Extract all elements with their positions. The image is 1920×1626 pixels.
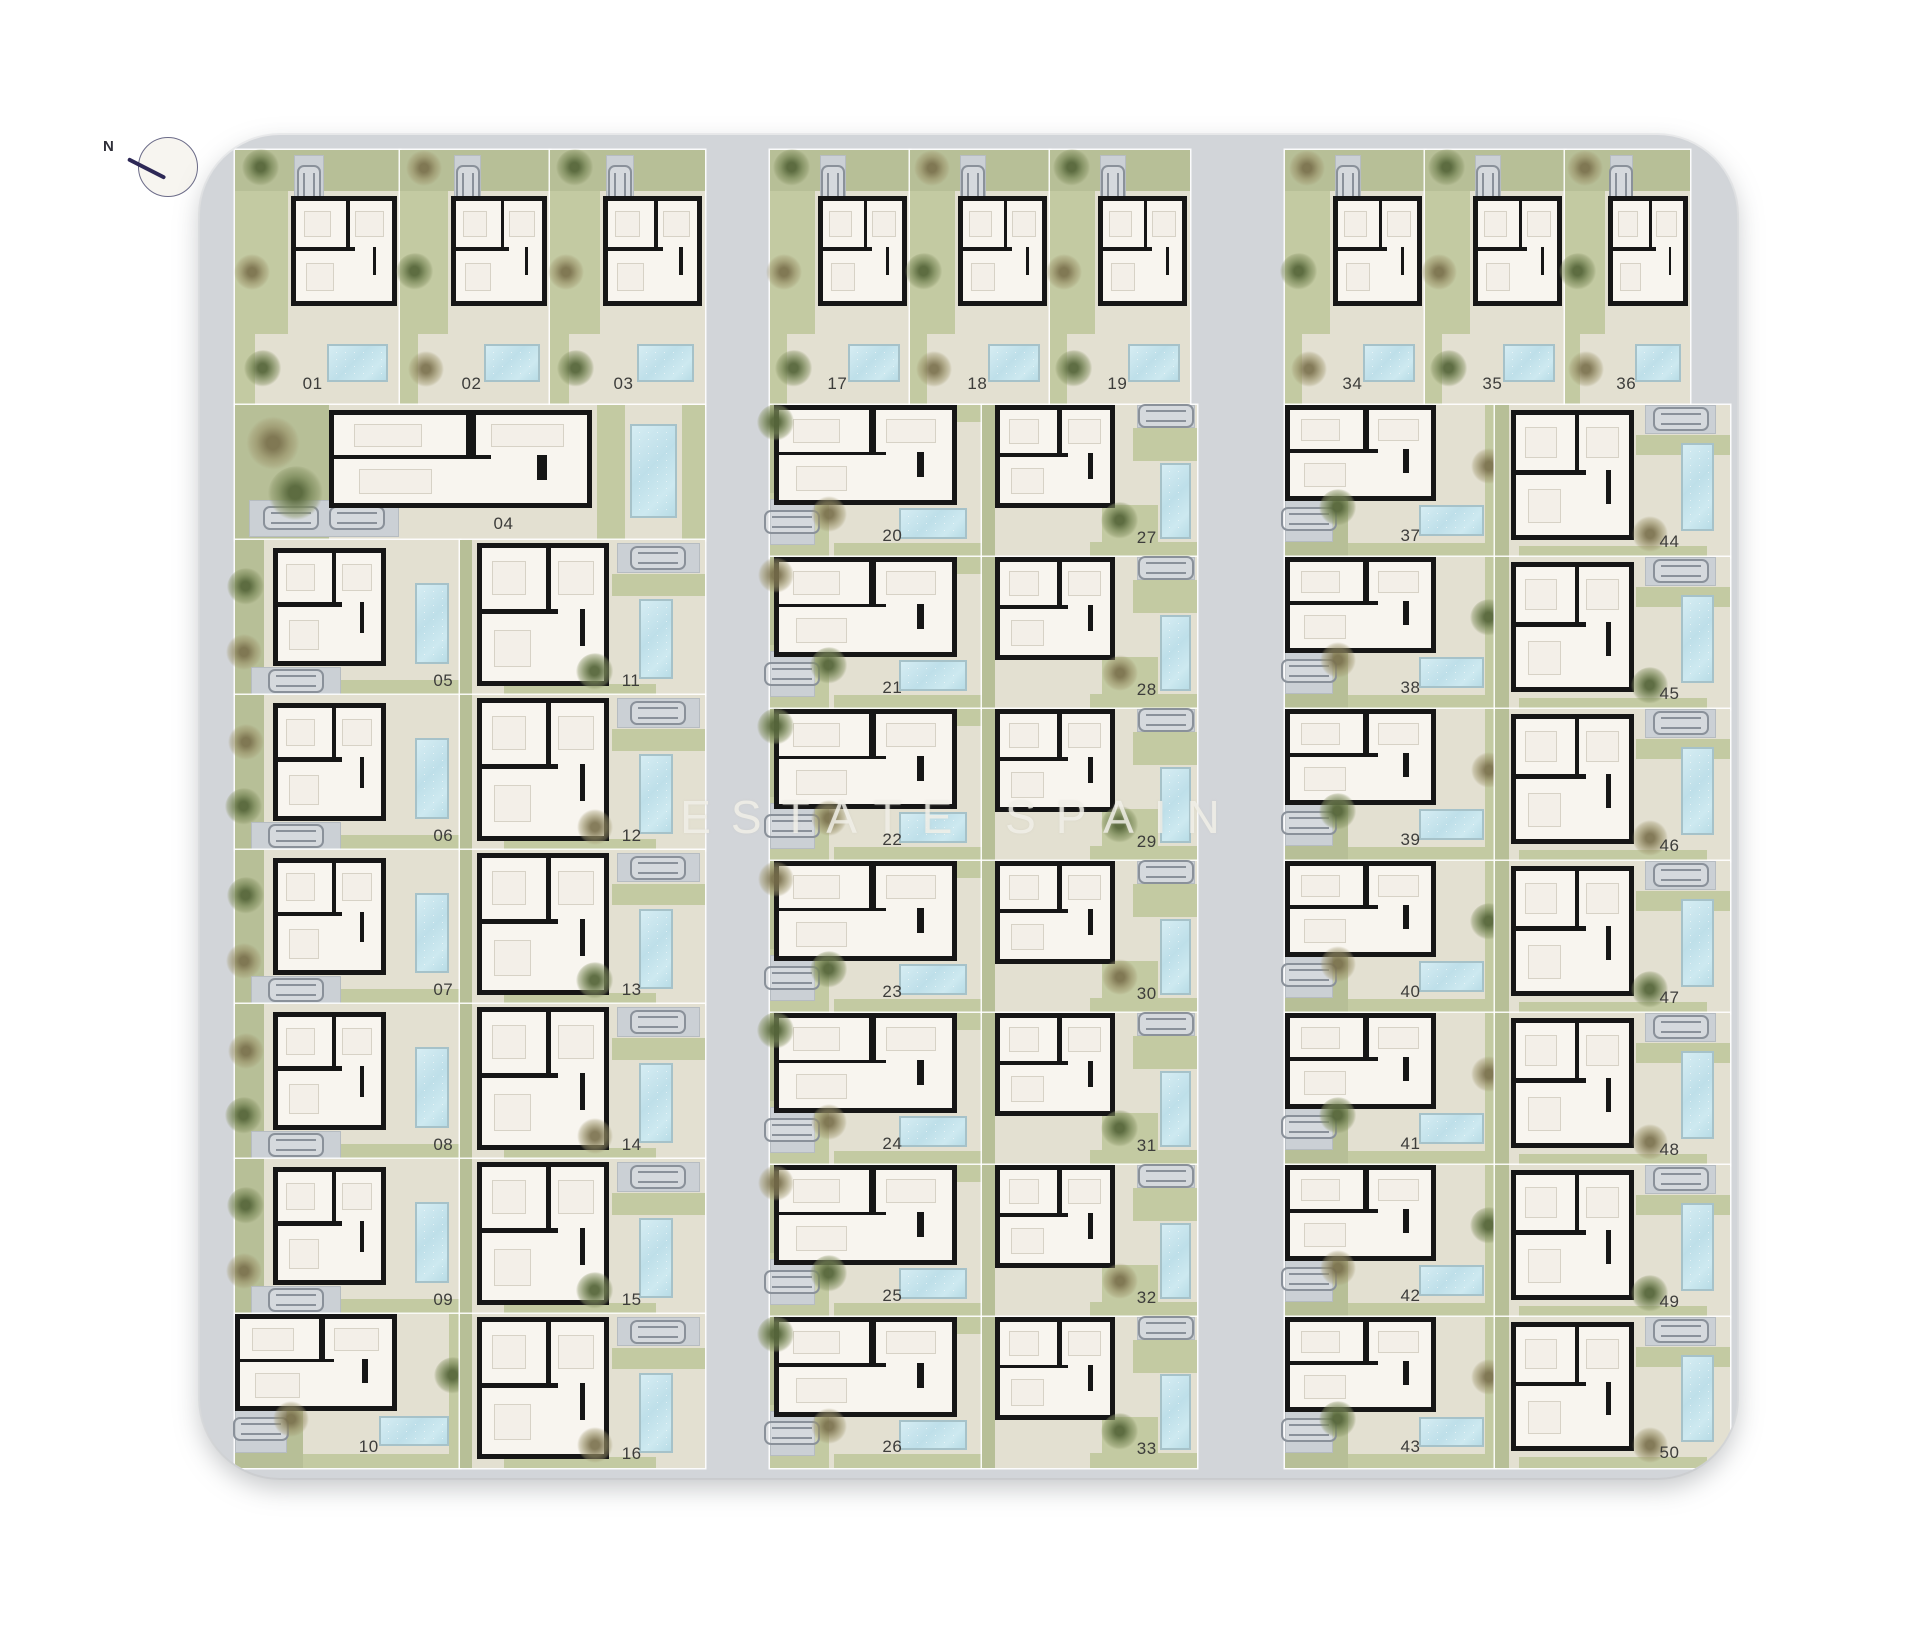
interior-wall: [278, 1221, 342, 1225]
garden-patch: [1133, 428, 1198, 461]
interior-wall: [917, 908, 924, 933]
swimming-pool: [1160, 1071, 1190, 1147]
interior-wall: [1088, 757, 1092, 783]
furniture-outline: [1011, 468, 1044, 494]
parking-pad: [617, 853, 700, 882]
furniture-outline: [1068, 419, 1101, 443]
interior-wall: [1363, 866, 1369, 905]
swimming-pool: [630, 424, 677, 519]
swimming-pool: [415, 1047, 449, 1128]
interior-wall: [1649, 201, 1652, 247]
furniture-outline: [796, 1074, 846, 1099]
plot-44: 44: [1495, 405, 1730, 557]
furniture-outline: [558, 1025, 594, 1059]
furniture-outline: [1012, 211, 1036, 237]
plot-number: 27: [1137, 529, 1157, 546]
house-footprint: [774, 861, 956, 961]
furniture-outline: [1525, 1035, 1556, 1066]
plot-08: 08: [235, 1004, 460, 1159]
interior-wall: [869, 1018, 876, 1060]
house-footprint: [774, 1165, 956, 1265]
furniture-outline: [1484, 211, 1507, 237]
plot-04: 04: [235, 405, 705, 540]
car-icon: [1653, 559, 1709, 583]
interior-wall: [1057, 562, 1061, 605]
furniture-outline: [1528, 489, 1561, 522]
furniture-outline: [1009, 1331, 1040, 1355]
parking-pad: [770, 1411, 815, 1456]
plot-number: 20: [882, 527, 902, 544]
furniture-outline: [793, 571, 840, 595]
plot-number: 44: [1660, 533, 1680, 550]
interior-wall: [360, 1221, 364, 1251]
interior-wall: [1290, 449, 1378, 452]
interior-wall: [779, 908, 886, 912]
interior-wall: [1606, 470, 1610, 504]
furniture-outline: [1068, 723, 1101, 747]
parking-pad: [617, 1317, 700, 1346]
furniture-outline: [1378, 571, 1420, 594]
parking-pad: [617, 543, 700, 572]
car-icon: [1138, 1164, 1194, 1188]
north-compass: N: [95, 130, 205, 220]
plot-number: 07: [433, 981, 453, 998]
plot-number: 04: [494, 515, 514, 532]
furniture-outline: [1586, 1339, 1619, 1370]
furniture-outline: [359, 469, 432, 494]
swimming-pool: [1419, 1265, 1484, 1295]
interior-wall: [864, 201, 867, 247]
car-icon: [630, 701, 686, 725]
garden-patch: [834, 1151, 982, 1165]
interior-wall: [278, 912, 342, 916]
plot-number: 30: [1137, 985, 1157, 1002]
plot-50: 50: [1495, 1317, 1730, 1468]
interior-wall: [580, 764, 585, 801]
interior-wall: [679, 247, 683, 275]
garden-patch: [982, 1165, 995, 1317]
plot-38: 38: [1285, 557, 1495, 709]
interior-wall: [482, 764, 558, 769]
furniture-outline: [1011, 1379, 1044, 1405]
furniture-outline: [1378, 1331, 1420, 1353]
plot-number: 42: [1401, 1287, 1421, 1304]
furniture-outline: [793, 723, 840, 747]
furniture-outline: [1304, 767, 1346, 791]
plot-number: 36: [1616, 375, 1636, 392]
plot-39: 39: [1285, 709, 1495, 861]
plot-number: 08: [433, 1136, 453, 1153]
furniture-outline: [1378, 723, 1420, 746]
furniture-outline: [492, 561, 526, 595]
plot-34: 34: [1285, 150, 1425, 405]
garden-patch: [1133, 732, 1198, 765]
furniture-outline: [1586, 579, 1619, 610]
garden-patch: [303, 1454, 449, 1468]
furniture-outline: [1378, 1027, 1420, 1050]
interior-wall: [1379, 201, 1382, 247]
parking-pad: [1645, 709, 1716, 738]
compass-north-label: N: [103, 138, 114, 155]
house-footprint: [1511, 410, 1633, 541]
plot-number: 21: [882, 679, 902, 696]
parking-pad: [251, 1286, 341, 1314]
car-icon: [329, 506, 385, 530]
parking-pad: [1137, 557, 1195, 580]
plot-26: 26: [770, 1317, 982, 1468]
interior-wall: [1575, 415, 1579, 471]
house-footprint: [995, 861, 1115, 964]
swimming-pool: [1681, 1051, 1714, 1139]
house-footprint: [774, 405, 956, 505]
plot-number: 17: [827, 375, 847, 392]
car-icon: [630, 1010, 686, 1034]
plot-number: 18: [967, 375, 987, 392]
furniture-outline: [494, 785, 530, 821]
plot-number: 15: [622, 1291, 642, 1308]
car-icon: [1138, 404, 1194, 428]
house-footprint: [235, 1314, 397, 1411]
garden-patch: [834, 695, 982, 709]
furniture-outline: [831, 263, 855, 291]
car-icon: [268, 1288, 324, 1312]
garden-patch: [612, 1038, 705, 1060]
plot-number: 06: [433, 827, 453, 844]
swimming-pool: [1681, 595, 1714, 683]
house-footprint: [1511, 562, 1633, 693]
interior-wall: [1057, 1322, 1061, 1365]
plot-number: 11: [622, 672, 641, 689]
interior-wall: [1519, 201, 1522, 247]
parking-pad: [770, 1107, 815, 1153]
house-footprint: [774, 1317, 956, 1417]
interior-wall: [917, 1212, 924, 1237]
furniture-outline: [558, 871, 594, 905]
interior-wall: [1088, 1061, 1092, 1087]
swimming-pool: [639, 754, 673, 835]
furniture-outline: [663, 211, 690, 237]
interior-wall: [869, 410, 876, 452]
furniture-outline: [1301, 875, 1340, 898]
interior-wall: [779, 452, 886, 456]
furniture-outline: [796, 1226, 846, 1251]
furniture-outline: [1009, 1027, 1040, 1051]
plot-32: 32: [982, 1165, 1197, 1317]
plot-47: 47: [1495, 861, 1730, 1013]
swimming-pool: [1419, 1113, 1484, 1143]
garden-patch: [597, 405, 625, 540]
house-footprint: [1285, 1317, 1436, 1412]
swimming-pool: [639, 1218, 673, 1299]
furniture-outline: [1378, 1179, 1420, 1202]
furniture-outline: [886, 1027, 936, 1051]
plot-number: 26: [882, 1438, 902, 1455]
garden-patch: [1495, 1013, 1509, 1165]
parking-pad: [1645, 1165, 1716, 1194]
parking-pad: [1137, 405, 1195, 428]
plot-20: 20: [770, 405, 982, 557]
house-footprint: [1098, 196, 1188, 306]
furniture-outline: [1528, 1401, 1561, 1434]
house-footprint: [273, 703, 386, 821]
plot-number: 16: [622, 1445, 642, 1462]
furniture-outline: [558, 716, 594, 750]
interior-wall: [1403, 449, 1409, 473]
garden-patch: [1348, 543, 1485, 557]
interior-wall: [482, 1383, 558, 1388]
interior-wall: [466, 415, 476, 455]
parking-pad: [1645, 1013, 1716, 1042]
interior-wall: [278, 602, 342, 606]
interior-wall: [1103, 247, 1152, 251]
plot-35: 35: [1425, 150, 1565, 405]
furniture-outline: [1528, 1249, 1561, 1282]
furniture-outline: [1586, 1035, 1619, 1066]
interior-wall: [1401, 247, 1404, 275]
plot-number: 31: [1137, 1137, 1157, 1154]
swimming-pool: [1363, 344, 1415, 382]
furniture-outline: [969, 211, 992, 237]
plot-10: 10: [235, 1314, 460, 1468]
parking-pad: [1645, 1317, 1716, 1346]
house-footprint: [1285, 861, 1436, 957]
furniture-outline: [289, 620, 320, 650]
swimming-pool: [1635, 344, 1681, 382]
interior-wall: [1057, 714, 1061, 757]
furniture-outline: [1586, 427, 1619, 458]
furniture-outline: [1586, 883, 1619, 914]
furniture-outline: [255, 1373, 300, 1398]
interior-wall: [1606, 926, 1610, 960]
furniture-outline: [509, 211, 535, 237]
interior-wall: [1000, 1365, 1068, 1369]
furniture-outline: [1586, 1187, 1619, 1218]
interior-wall: [1088, 1365, 1092, 1391]
plot-48: 48: [1495, 1013, 1730, 1165]
interior-wall: [1575, 567, 1579, 623]
furniture-outline: [1527, 211, 1551, 237]
interior-wall: [580, 919, 585, 956]
interior-wall: [1088, 453, 1092, 479]
parking-pad: [1137, 1165, 1195, 1188]
furniture-outline: [1068, 571, 1101, 595]
house-footprint: [995, 1013, 1115, 1116]
interior-wall: [823, 247, 872, 251]
furniture-outline: [1301, 723, 1340, 746]
furniture-outline: [1301, 571, 1340, 594]
car-icon: [268, 669, 324, 693]
plot-number: 25: [882, 1287, 902, 1304]
plot-number: 47: [1660, 989, 1680, 1006]
plot-12: 12: [460, 695, 705, 850]
plot-number: 34: [1342, 375, 1362, 392]
garden-patch: [834, 999, 982, 1013]
furniture-outline: [1304, 615, 1346, 639]
garden-patch: [460, 1004, 472, 1159]
plot-number: 13: [622, 981, 642, 998]
garden-patch: [1133, 1188, 1198, 1221]
car-icon: [630, 546, 686, 570]
plot-24: 24: [770, 1013, 982, 1165]
interior-wall: [1057, 1170, 1061, 1213]
swimming-pool: [899, 508, 967, 538]
furniture-outline: [1009, 419, 1040, 443]
parking-pad: [617, 698, 700, 727]
plot-number: 39: [1401, 831, 1421, 848]
furniture-outline: [1109, 211, 1132, 237]
garden-patch: [1495, 557, 1509, 709]
interior-wall: [456, 247, 509, 251]
plot-23: 23: [770, 861, 982, 1013]
parking-pad: [1137, 1013, 1195, 1036]
furniture-outline: [465, 263, 491, 291]
interior-wall: [1290, 601, 1378, 604]
interior-wall: [346, 201, 350, 247]
furniture-outline: [1068, 1027, 1101, 1051]
house-footprint: [1608, 196, 1688, 306]
furniture-outline: [793, 875, 840, 899]
interior-wall: [1363, 1018, 1369, 1057]
interior-wall: [319, 1319, 325, 1359]
garden-patch: [1348, 1151, 1485, 1165]
house-footprint: [451, 196, 547, 306]
car-icon: [1653, 407, 1709, 431]
swimming-pool: [1160, 1374, 1190, 1450]
interior-wall: [1516, 926, 1586, 931]
interior-wall: [1290, 905, 1378, 908]
plot-14: 14: [460, 1004, 705, 1159]
house-footprint: [291, 196, 397, 306]
plot-06: 06: [235, 695, 460, 850]
plot-number: 43: [1401, 1438, 1421, 1455]
site-plan-canvas: N 01020304050607080910111213141516171819…: [0, 0, 1920, 1626]
parking-pad: [251, 1131, 341, 1159]
furniture-outline: [793, 1331, 840, 1355]
garden-patch: [612, 884, 705, 906]
interior-wall: [1088, 909, 1092, 935]
interior-wall: [1516, 1230, 1586, 1235]
house-footprint: [958, 196, 1048, 306]
parking-pad: [770, 651, 815, 697]
plot-49: 49: [1495, 1165, 1730, 1317]
furniture-outline: [1586, 731, 1619, 762]
swimming-pool: [1681, 899, 1714, 987]
car-icon: [1653, 711, 1709, 735]
plot-number: 05: [433, 672, 453, 689]
plot-37: 37: [1285, 405, 1495, 557]
furniture-outline: [1304, 1071, 1346, 1095]
plot-number: 33: [1137, 1440, 1157, 1457]
furniture-outline: [1528, 641, 1561, 674]
furniture-outline: [1656, 211, 1678, 237]
interior-wall: [1290, 1057, 1378, 1060]
interior-wall: [332, 1172, 336, 1222]
furniture-outline: [1525, 1187, 1556, 1218]
interior-wall: [1088, 605, 1092, 631]
interior-wall: [580, 609, 585, 646]
garden-patch: [982, 1013, 995, 1165]
furniture-outline: [1301, 1027, 1340, 1050]
parking-pad: [770, 1259, 815, 1305]
interior-wall: [869, 866, 876, 908]
swimming-pool: [1419, 505, 1484, 535]
garden-patch: [460, 1314, 472, 1468]
parking-pad: [1137, 709, 1195, 732]
furniture-outline: [793, 419, 840, 443]
interior-wall: [1669, 247, 1672, 275]
furniture-outline: [1304, 463, 1346, 487]
garden-patch: [1495, 1165, 1509, 1317]
garden-patch: [1495, 1317, 1509, 1468]
interior-wall: [546, 858, 551, 919]
interior-wall: [482, 1073, 558, 1078]
garden-patch: [982, 861, 995, 1013]
furniture-outline: [886, 723, 936, 747]
garden-patch: [460, 1159, 472, 1314]
furniture-outline: [872, 211, 896, 237]
furniture-outline: [286, 564, 315, 592]
interior-wall: [332, 1017, 336, 1067]
interior-wall: [917, 756, 924, 781]
interior-wall: [482, 1228, 558, 1233]
plot-number: 19: [1107, 375, 1127, 392]
furniture-outline: [494, 940, 530, 976]
garden-patch: [1133, 580, 1198, 613]
house-footprint: [774, 1013, 956, 1113]
interior-wall: [360, 1066, 364, 1096]
garden-patch: [1348, 1303, 1485, 1317]
interior-wall: [869, 1322, 876, 1363]
furniture-outline: [1525, 579, 1556, 610]
plot-46: 46: [1495, 709, 1730, 861]
interior-wall: [1363, 1322, 1369, 1361]
furniture-outline: [494, 630, 530, 666]
furniture-outline: [286, 719, 315, 747]
swimming-pool: [484, 344, 540, 382]
furniture-outline: [617, 263, 644, 291]
swimming-pool: [1419, 961, 1484, 991]
interior-wall: [917, 1363, 924, 1388]
interior-wall: [296, 247, 355, 251]
furniture-outline: [1152, 211, 1176, 237]
house-footprint: [1511, 1322, 1633, 1452]
plot-13: 13: [460, 850, 705, 1004]
swimming-pool: [1681, 747, 1714, 835]
furniture-outline: [1346, 263, 1370, 291]
garden-patch: [1495, 709, 1509, 861]
parking-pad: [1645, 557, 1716, 586]
interior-wall: [1088, 1213, 1092, 1239]
house-footprint: [995, 1165, 1115, 1268]
furniture-outline: [492, 1335, 526, 1369]
watermark: ESTATE SPAIN: [680, 790, 1240, 844]
house-footprint: [329, 410, 592, 507]
interior-wall: [608, 247, 663, 251]
parking-pad: [251, 976, 341, 1004]
furniture-outline: [286, 1028, 315, 1056]
garden-patch: [460, 850, 472, 1004]
furniture-outline: [354, 424, 422, 447]
interior-wall: [1575, 1023, 1579, 1079]
swimming-pool: [379, 1416, 449, 1447]
furniture-outline: [558, 1180, 594, 1214]
interior-wall: [1541, 247, 1544, 275]
interior-wall: [1144, 201, 1147, 247]
interior-wall: [1403, 1361, 1409, 1385]
house-footprint: [995, 405, 1115, 508]
furniture-outline: [1525, 731, 1556, 762]
garden-patch: [982, 1317, 995, 1468]
